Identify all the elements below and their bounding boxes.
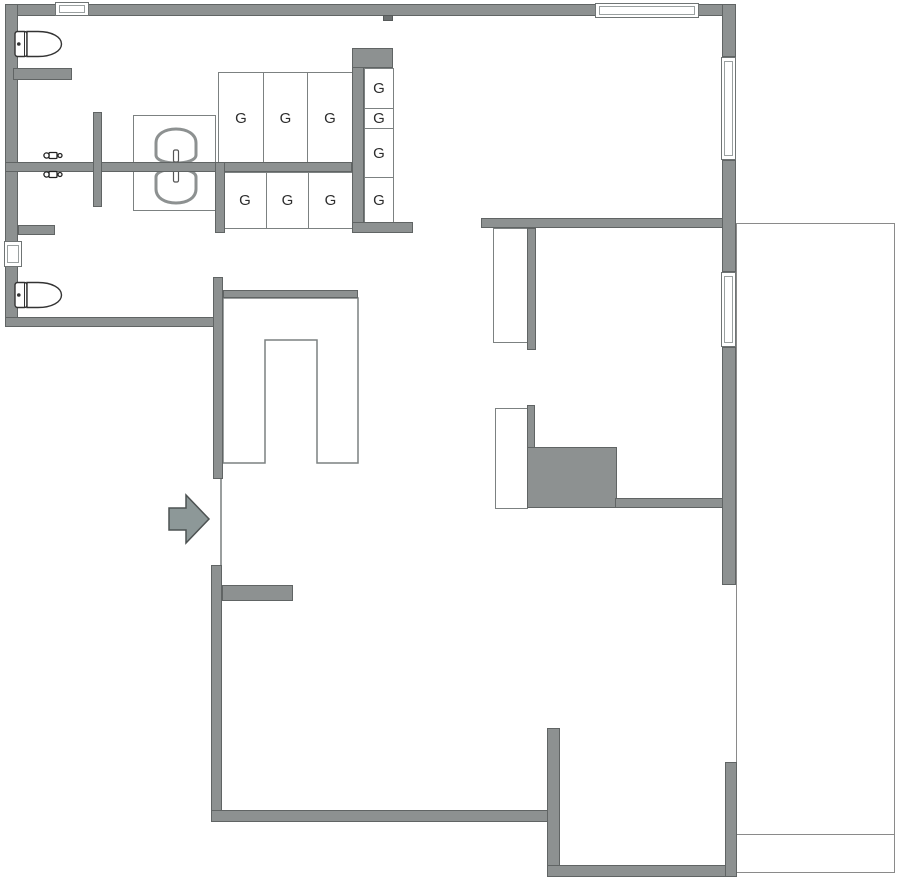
wall-right-seg2 (722, 160, 736, 272)
window-pane (59, 5, 85, 13)
locker-label: G (325, 192, 337, 209)
closet-upper (493, 228, 528, 343)
wall-locker-column (352, 48, 364, 225)
wall-locker-bottom (352, 222, 413, 233)
wall-ext-vertical (547, 728, 560, 877)
wall-block-fill (527, 447, 617, 508)
wall-washroom-divider (93, 112, 102, 207)
wall-room-vertical (527, 228, 536, 350)
floor-plan: G G G G G G G G G G (0, 0, 904, 880)
faucet-icon (43, 149, 64, 162)
locker-cell: G (223, 172, 267, 229)
sink-basin-bottom-icon (152, 167, 200, 205)
wall-locker-step (215, 162, 225, 233)
annex-divider-line (736, 834, 895, 835)
toilet-icon (14, 29, 63, 59)
locker-cell: G (364, 177, 394, 223)
locker-label: G (324, 110, 336, 127)
locker-cell: G (364, 128, 394, 178)
staircase (222, 297, 360, 465)
locker-label: G (373, 192, 385, 209)
window-right-upper (721, 57, 736, 160)
faucet-icon (43, 168, 64, 181)
window-pane (724, 61, 733, 156)
wall-ext-bottom (547, 865, 737, 877)
window-left (4, 241, 22, 267)
wall-top-tick (383, 15, 393, 21)
wall-toilet2-stub (18, 225, 55, 235)
wall-closet2-vertical (527, 405, 535, 448)
wall-locker-cap (352, 48, 393, 68)
closet-lower (495, 408, 528, 509)
wall-toilet1-stub (13, 68, 72, 80)
wall-toilet2-bottom (5, 317, 223, 327)
locker-cell: G (308, 172, 353, 229)
wall-hall-stub (222, 585, 293, 601)
locker-cell: G (364, 108, 394, 129)
locker-label: G (239, 192, 251, 209)
locker-cell: G (364, 68, 394, 109)
wall-room-bottom (615, 498, 725, 508)
wall-stair-left (213, 277, 223, 479)
window-right-lower (721, 272, 736, 347)
wall-right-seg1 (722, 4, 736, 57)
locker-label: G (235, 110, 247, 127)
locker-cell: G (266, 172, 309, 229)
locker-label: G (373, 145, 385, 162)
wall-stair-top (223, 290, 358, 298)
locker-label: G (280, 110, 292, 127)
toilet-icon (14, 280, 63, 310)
window-top-right (595, 3, 699, 18)
entrance-opening-line (220, 479, 222, 565)
locker-cell: G (307, 72, 353, 164)
wall-right-seg3 (722, 347, 736, 585)
window-pane (599, 6, 695, 15)
window-pane (7, 245, 19, 263)
entrance-arrow-icon (169, 493, 211, 545)
locker-label: G (282, 192, 294, 209)
wall-room-top (481, 218, 732, 228)
wall-hall-left (211, 565, 222, 822)
wall-right-lower (725, 762, 737, 877)
sink-basin-top-icon (152, 127, 200, 165)
window-top-left (55, 2, 89, 16)
window-pane (724, 276, 733, 343)
locker-cell: G (218, 72, 264, 164)
wall-bottom-main (211, 810, 560, 822)
locker-label: G (373, 110, 385, 127)
locker-label: G (373, 80, 385, 97)
annex-outline (736, 223, 895, 873)
locker-cell: G (263, 72, 308, 164)
